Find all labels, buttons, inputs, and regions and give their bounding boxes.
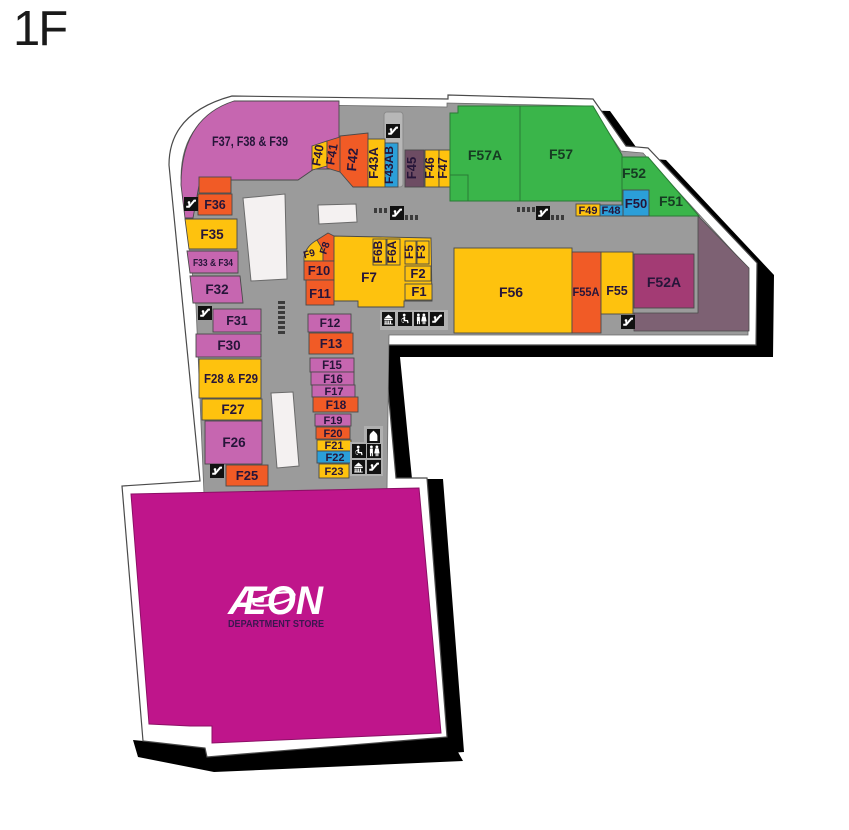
svg-text:F28 & F29: F28 & F29 <box>204 371 258 386</box>
svg-text:F57: F57 <box>549 146 573 162</box>
svg-text:F35: F35 <box>200 227 224 242</box>
svg-text:F6A: F6A <box>385 240 399 263</box>
svg-text:F31: F31 <box>226 314 248 328</box>
svg-text:F42: F42 <box>344 147 361 171</box>
svg-text:DEPARTMENT STORE: DEPARTMENT STORE <box>228 619 324 630</box>
svg-text:F46: F46 <box>423 157 437 179</box>
svg-text:F2: F2 <box>410 266 425 281</box>
svg-text:ÆON: ÆON <box>227 579 324 623</box>
svg-text:F7: F7 <box>361 270 377 285</box>
svg-text:F23: F23 <box>325 466 344 478</box>
svg-text:F3: F3 <box>414 245 428 259</box>
svg-text:F6B: F6B <box>371 240 385 263</box>
svg-text:F27: F27 <box>221 402 244 417</box>
svg-text:1F: 1F <box>13 2 66 56</box>
svg-text:F52A: F52A <box>647 274 681 290</box>
svg-text:F10: F10 <box>308 263 330 278</box>
svg-text:F55: F55 <box>606 284 628 298</box>
svg-text:F32: F32 <box>205 282 228 297</box>
svg-text:F52: F52 <box>622 165 646 181</box>
svg-text:F37, F38 & F39: F37, F38 & F39 <box>212 133 288 149</box>
svg-text:F11: F11 <box>309 286 331 301</box>
svg-text:F12: F12 <box>320 316 341 330</box>
svg-text:F51: F51 <box>659 193 683 209</box>
svg-text:F45: F45 <box>404 157 419 179</box>
svg-text:F50: F50 <box>625 196 647 211</box>
svg-text:F18: F18 <box>326 398 347 412</box>
svg-text:F19: F19 <box>324 415 343 427</box>
svg-text:F33 & F34: F33 & F34 <box>193 257 233 269</box>
svg-text:F55A: F55A <box>573 287 600 299</box>
svg-text:F16: F16 <box>323 374 343 386</box>
svg-text:F36: F36 <box>204 198 226 212</box>
svg-text:F48: F48 <box>602 205 621 217</box>
svg-text:F49: F49 <box>579 205 598 217</box>
svg-text:F56: F56 <box>499 284 523 300</box>
svg-text:F43AB: F43AB <box>382 146 396 184</box>
svg-text:F15: F15 <box>322 360 342 372</box>
svg-text:F43A: F43A <box>366 146 381 178</box>
svg-text:F25: F25 <box>236 468 258 483</box>
svg-text:F26: F26 <box>222 435 246 450</box>
svg-text:F57A: F57A <box>468 147 502 163</box>
svg-text:F1: F1 <box>411 284 426 299</box>
svg-text:F13: F13 <box>320 336 342 351</box>
svg-text:F21: F21 <box>325 440 344 452</box>
svg-text:F17: F17 <box>325 386 344 398</box>
svg-text:F22: F22 <box>326 452 345 464</box>
svg-text:F30: F30 <box>217 338 240 353</box>
svg-text:F20: F20 <box>324 428 343 440</box>
svg-text:F47: F47 <box>436 157 450 179</box>
